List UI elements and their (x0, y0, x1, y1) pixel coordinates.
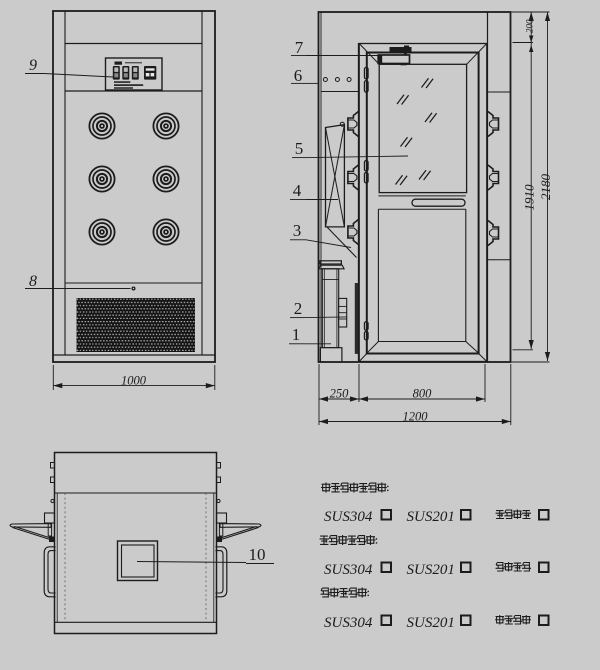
svg-text:250: 250 (330, 386, 350, 400)
svg-text:3: 3 (293, 221, 302, 240)
svg-text:9: 9 (29, 57, 37, 74)
svg-text:800: 800 (413, 386, 433, 400)
svg-text:1910: 1910 (521, 184, 536, 211)
svg-text:200: 200 (524, 19, 534, 33)
svg-text:1: 1 (292, 325, 301, 344)
svg-text:SUS304: SUS304 (324, 562, 373, 578)
svg-text:6: 6 (294, 66, 303, 85)
svg-text:8: 8 (29, 273, 37, 290)
svg-text:1200: 1200 (403, 409, 429, 423)
svg-text:10: 10 (249, 545, 266, 564)
svg-text:2180: 2180 (538, 174, 553, 201)
svg-text:SUS201: SUS201 (407, 615, 455, 631)
svg-text:7: 7 (295, 38, 304, 57)
svg-text:SUS304: SUS304 (324, 615, 373, 631)
svg-text:SUS304: SUS304 (324, 509, 373, 525)
svg-text:SUS201: SUS201 (407, 562, 455, 578)
svg-text:5: 5 (295, 139, 304, 158)
svg-text:SUS201: SUS201 (407, 509, 455, 525)
svg-text:1000: 1000 (121, 374, 147, 388)
svg-text:2: 2 (294, 299, 303, 318)
svg-text:4: 4 (293, 181, 302, 200)
